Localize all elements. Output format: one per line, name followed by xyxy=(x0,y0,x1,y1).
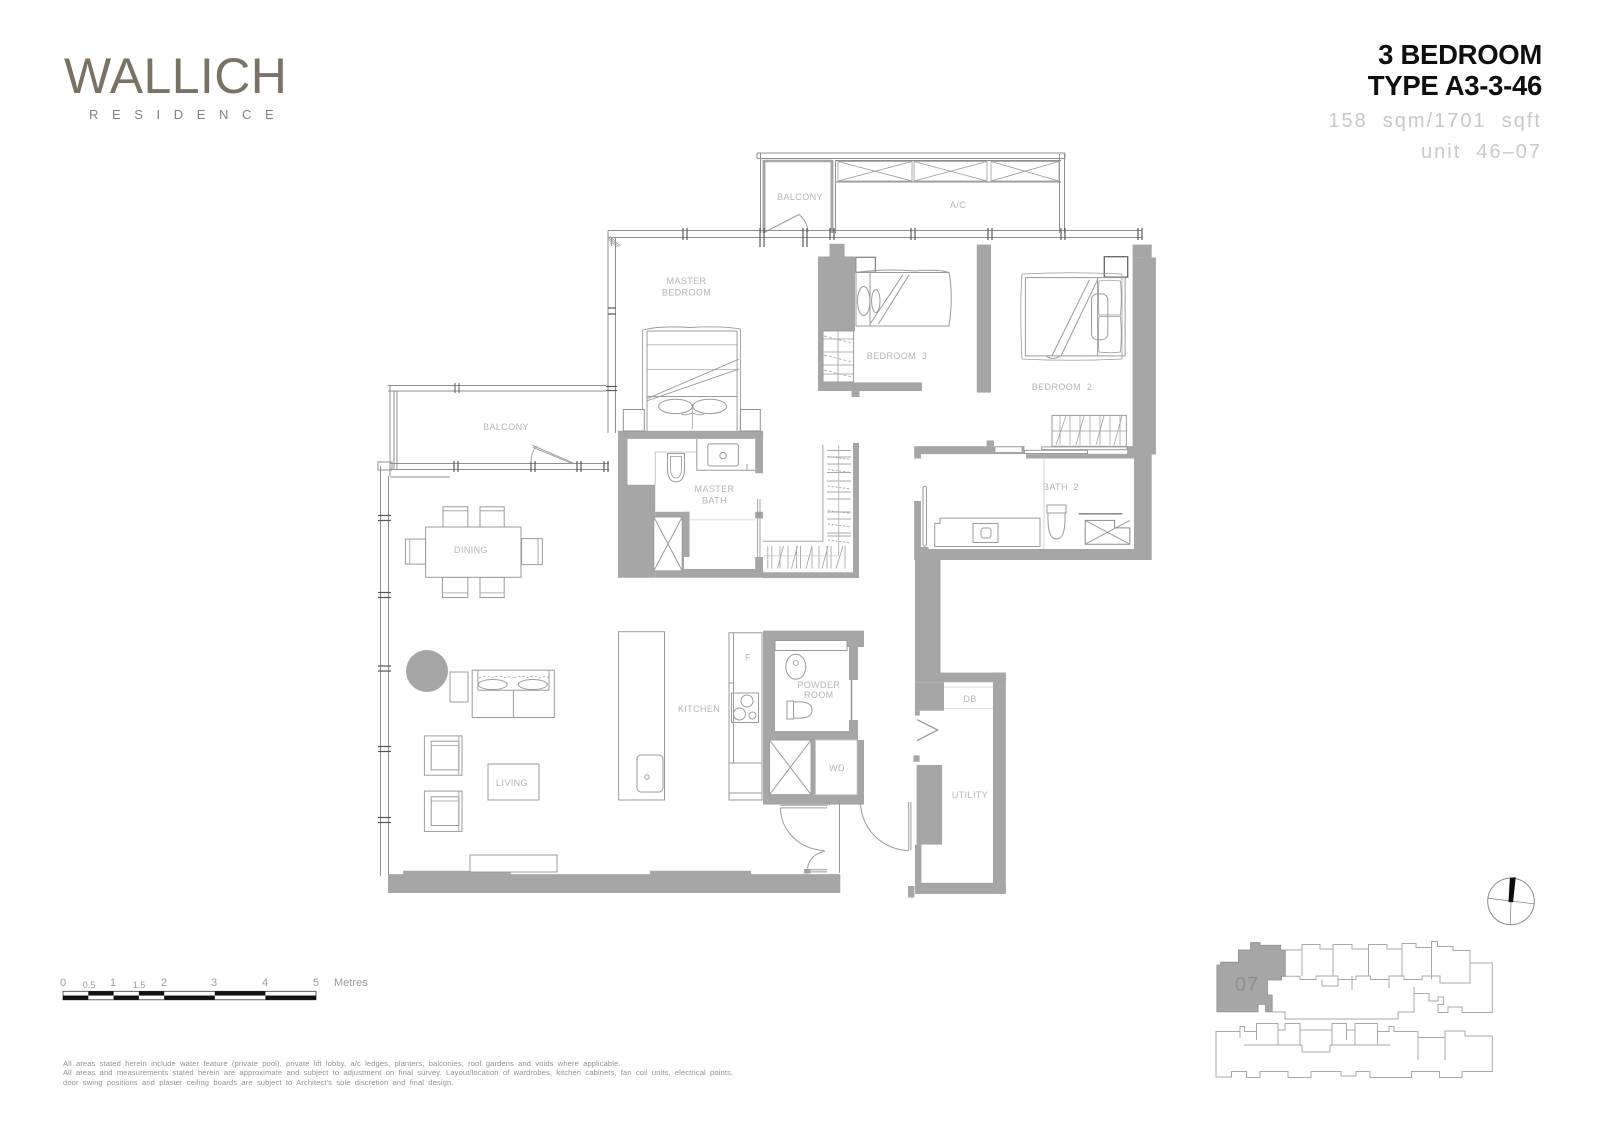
svg-text:BATH: BATH xyxy=(702,496,727,506)
svg-text:4: 4 xyxy=(262,977,268,989)
svg-text:5: 5 xyxy=(313,977,319,989)
svg-text:F: F xyxy=(745,653,751,663)
svg-text:BALCONY: BALCONY xyxy=(483,422,529,432)
svg-text:Metres: Metres xyxy=(334,977,368,989)
svg-text:07: 07 xyxy=(1235,974,1259,996)
svg-text:2: 2 xyxy=(161,977,167,989)
svg-text:LIVING: LIVING xyxy=(496,778,528,788)
svg-text:UTILITY: UTILITY xyxy=(952,790,988,800)
svg-text:POWDER: POWDER xyxy=(797,680,840,690)
svg-text:DINING: DINING xyxy=(454,545,488,555)
svg-text:3: 3 xyxy=(211,977,217,989)
svg-text:BATH 2: BATH 2 xyxy=(1043,482,1079,492)
svg-text:BEDROOM: BEDROOM xyxy=(662,288,711,298)
svg-text:KITCHEN: KITCHEN xyxy=(678,704,720,714)
svg-text:MASTER: MASTER xyxy=(667,276,707,286)
svg-text:DB: DB xyxy=(963,694,976,704)
svg-text:BALCONY: BALCONY xyxy=(777,192,823,202)
svg-text:1: 1 xyxy=(110,977,116,989)
svg-text:BEDROOM 3: BEDROOM 3 xyxy=(867,351,928,361)
svg-text:1.5: 1.5 xyxy=(133,980,146,990)
svg-text:ROOM: ROOM xyxy=(804,690,834,700)
svg-text:WD: WD xyxy=(829,763,845,773)
svg-text:A/C: A/C xyxy=(950,200,966,210)
svg-text:BEDROOM 2: BEDROOM 2 xyxy=(1032,382,1093,392)
svg-text:MASTER: MASTER xyxy=(695,484,735,494)
svg-text:0: 0 xyxy=(60,977,66,989)
svg-text:0.5: 0.5 xyxy=(83,980,96,990)
